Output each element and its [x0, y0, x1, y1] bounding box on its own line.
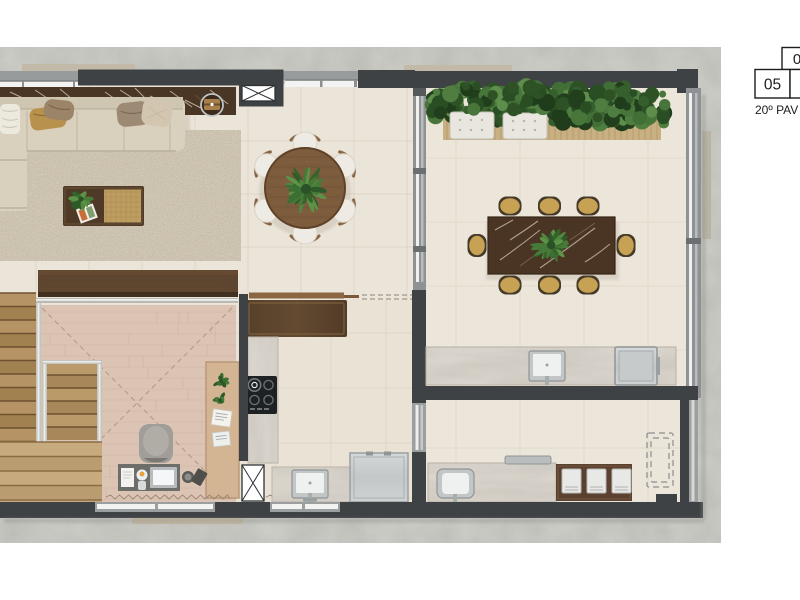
svg-text:0: 0	[793, 51, 800, 68]
svg-text:20º PAV: 20º PAV	[755, 103, 798, 117]
svg-text:05: 05	[764, 77, 781, 94]
